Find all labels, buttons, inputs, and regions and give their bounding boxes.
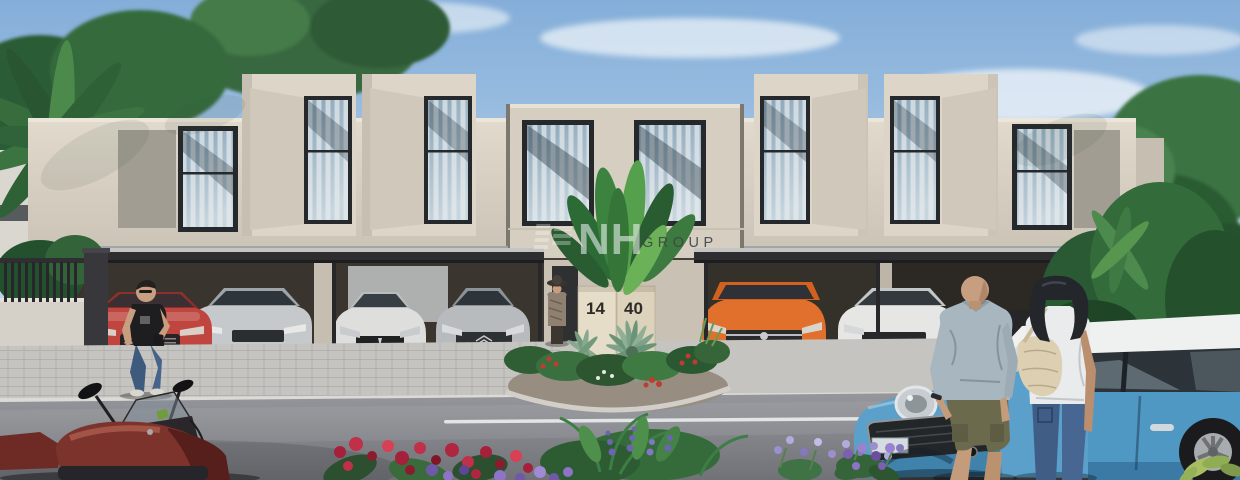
boundary-fence-left bbox=[0, 235, 110, 352]
watermark-brand: NH bbox=[578, 215, 644, 264]
sign-number-left: 14 bbox=[586, 299, 605, 318]
watermark-suffix: GROUP bbox=[642, 235, 718, 251]
sign-number-right: 40 bbox=[624, 299, 643, 318]
window-box bbox=[884, 74, 998, 236]
window-box bbox=[362, 74, 476, 236]
window-box bbox=[754, 74, 868, 236]
scene-canvas: 14 40 bbox=[0, 0, 1240, 480]
render-scene: 14 40 bbox=[0, 0, 1240, 480]
window bbox=[178, 126, 238, 232]
window-box bbox=[242, 74, 356, 236]
